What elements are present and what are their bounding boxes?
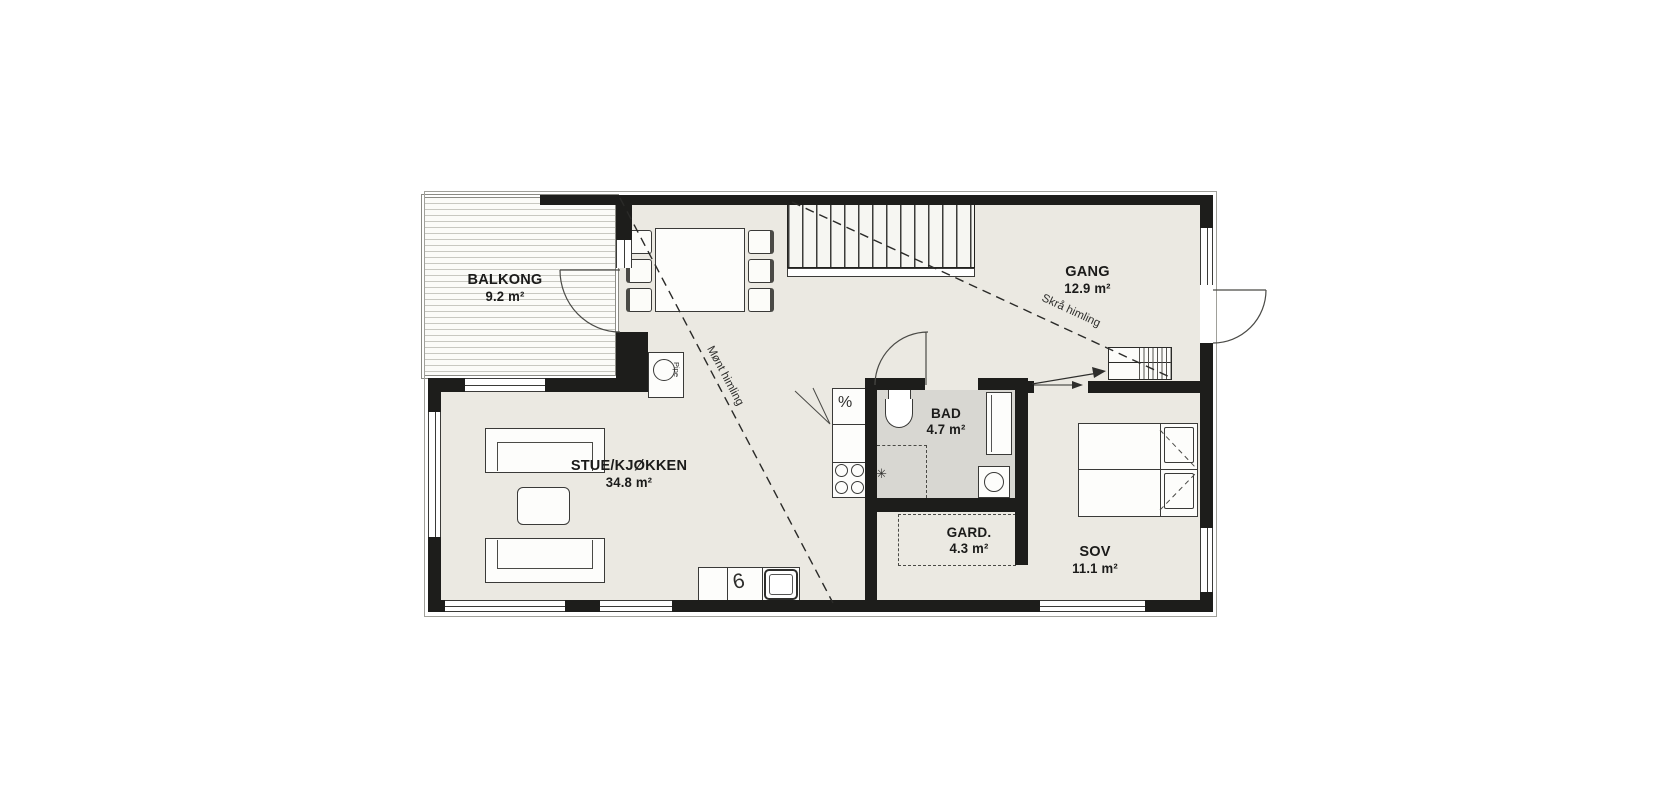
window-under-balcony [465,378,545,392]
counter-divider [762,567,763,602]
room-label-gard: GARD. 4.3 m² [917,524,1022,558]
floor-plan-canvas: Pipe % 6 ✳ [0,0,1670,800]
window-balcony-partition [616,240,632,268]
bed-headboard-line [1160,423,1161,517]
cooktop-burner [835,481,848,494]
chimney-label: Pipe [672,362,681,377]
shower-head-icon: ✳ [876,466,887,482]
window-bedroom-bottom [1040,600,1145,612]
entry-door-swing [1213,290,1266,343]
window-kitchen-bottom [600,600,672,612]
wall-segment-balcony-partition [616,195,632,240]
wall-bedroom-top [1028,381,1034,393]
wall-segment-bottom [1145,600,1213,612]
counter-divider [832,424,866,425]
room-area: 4.3 m² [917,541,1022,557]
wall-bedroom-top [1088,381,1200,393]
room-area: 34.8 m² [556,475,702,491]
dining-chair [748,288,774,312]
bed-center-line [1078,469,1198,470]
room-area: 11.1 m² [1042,561,1149,577]
dining-table [655,228,745,312]
wall-segment-under-balcony [428,378,465,392]
window-bedroom-right [1200,528,1213,592]
coffee-table [517,487,570,525]
room-name: STUE/KJØKKEN [556,457,702,475]
window-gang-right [1200,228,1213,285]
cooktop-burner [851,481,864,494]
room-name: SOV [1042,543,1149,561]
staircase-upper-steps [1108,347,1172,380]
pillow [1164,473,1194,509]
window-living-bottom [445,600,565,612]
pillow [1164,427,1194,463]
wall-segment-left [428,537,441,612]
counter-divider [832,462,866,463]
wall-segment-top [540,195,1213,205]
wall-segment-right [1200,343,1213,528]
wall-segment-right [1200,195,1213,228]
bathroom-vanity [986,392,1012,455]
room-area: 4.7 m² [906,422,986,438]
dining-chair [748,230,774,254]
dishwasher-symbol: % [838,394,852,412]
room-label-sov: SOV 11.1 m² [1042,543,1149,578]
washing-machine-drum [984,472,1004,492]
step-hatch [1139,348,1171,379]
dining-chair [626,288,652,312]
counter-divider [727,567,728,602]
wall-segment-balcony-corner [616,332,648,392]
room-label-balkong: BALKONG 9.2 m² [432,271,578,306]
room-area: 9.2 m² [432,289,578,305]
staircase-landing-edge [787,268,975,277]
sofa [485,538,605,583]
cooktop-burner [851,464,864,477]
wall-segment-bottom [672,600,1040,612]
room-name: GANG [1017,263,1158,281]
room-name: BALKONG [432,271,578,289]
wall-bath-wardrobe-divider [865,498,1028,512]
window-living-left [428,412,441,537]
room-name: GARD. [917,524,1022,541]
sofa-seat-line [497,540,593,569]
vanity-line [991,395,992,452]
wall-kitchen-bath-divider [865,378,877,600]
dining-chair [748,259,774,283]
wall-bath-top [877,378,925,390]
cooktop-burner [835,464,848,477]
staircase [787,200,975,268]
wall-segment-bottom [565,600,600,612]
room-name: BAD [906,405,986,422]
room-label-bad: BAD 4.7 m² [906,405,986,439]
room-label-stue-kjokken: STUE/KJØKKEN 34.8 m² [556,457,702,492]
sink-basin [769,574,793,595]
kitchen-sink [764,569,798,600]
